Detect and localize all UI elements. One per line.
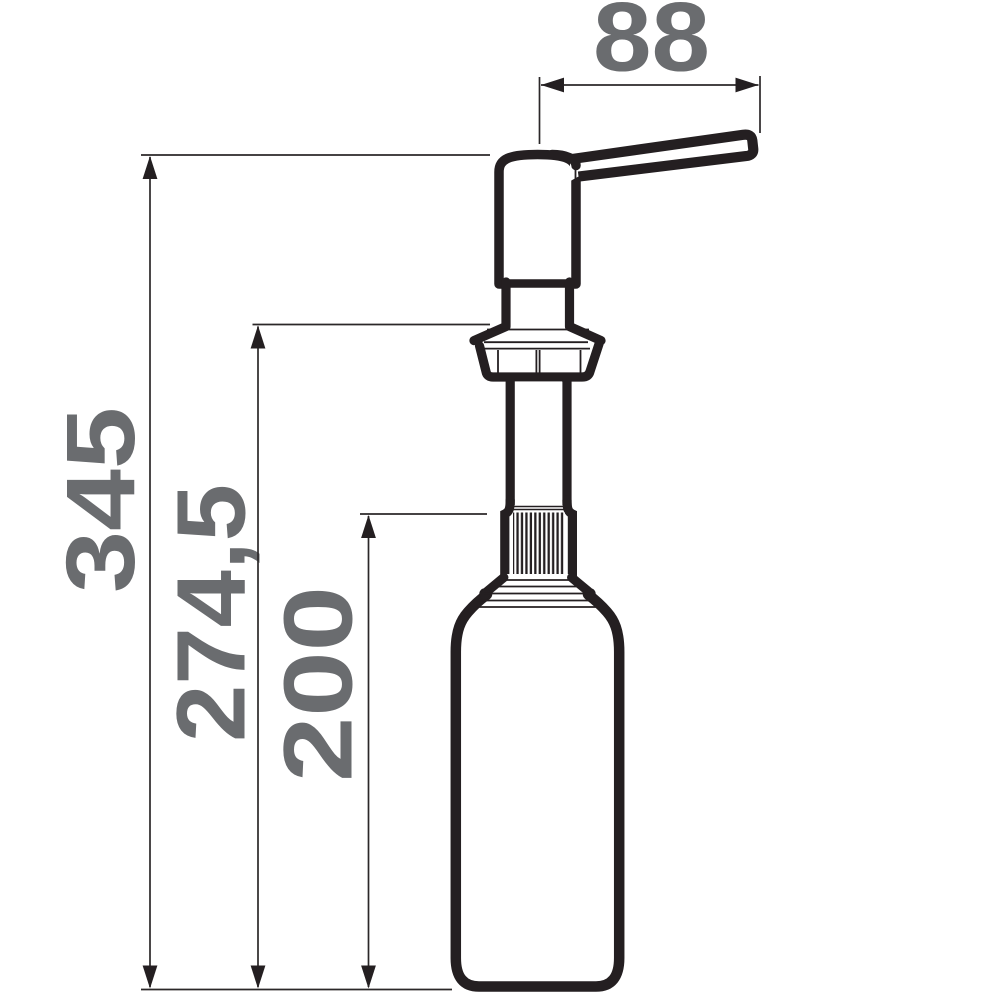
svg-text:345: 345 [46, 407, 155, 593]
svg-text:88: 88 [593, 0, 710, 91]
svg-text:274,5: 274,5 [157, 484, 266, 742]
svg-text:200: 200 [264, 586, 373, 782]
